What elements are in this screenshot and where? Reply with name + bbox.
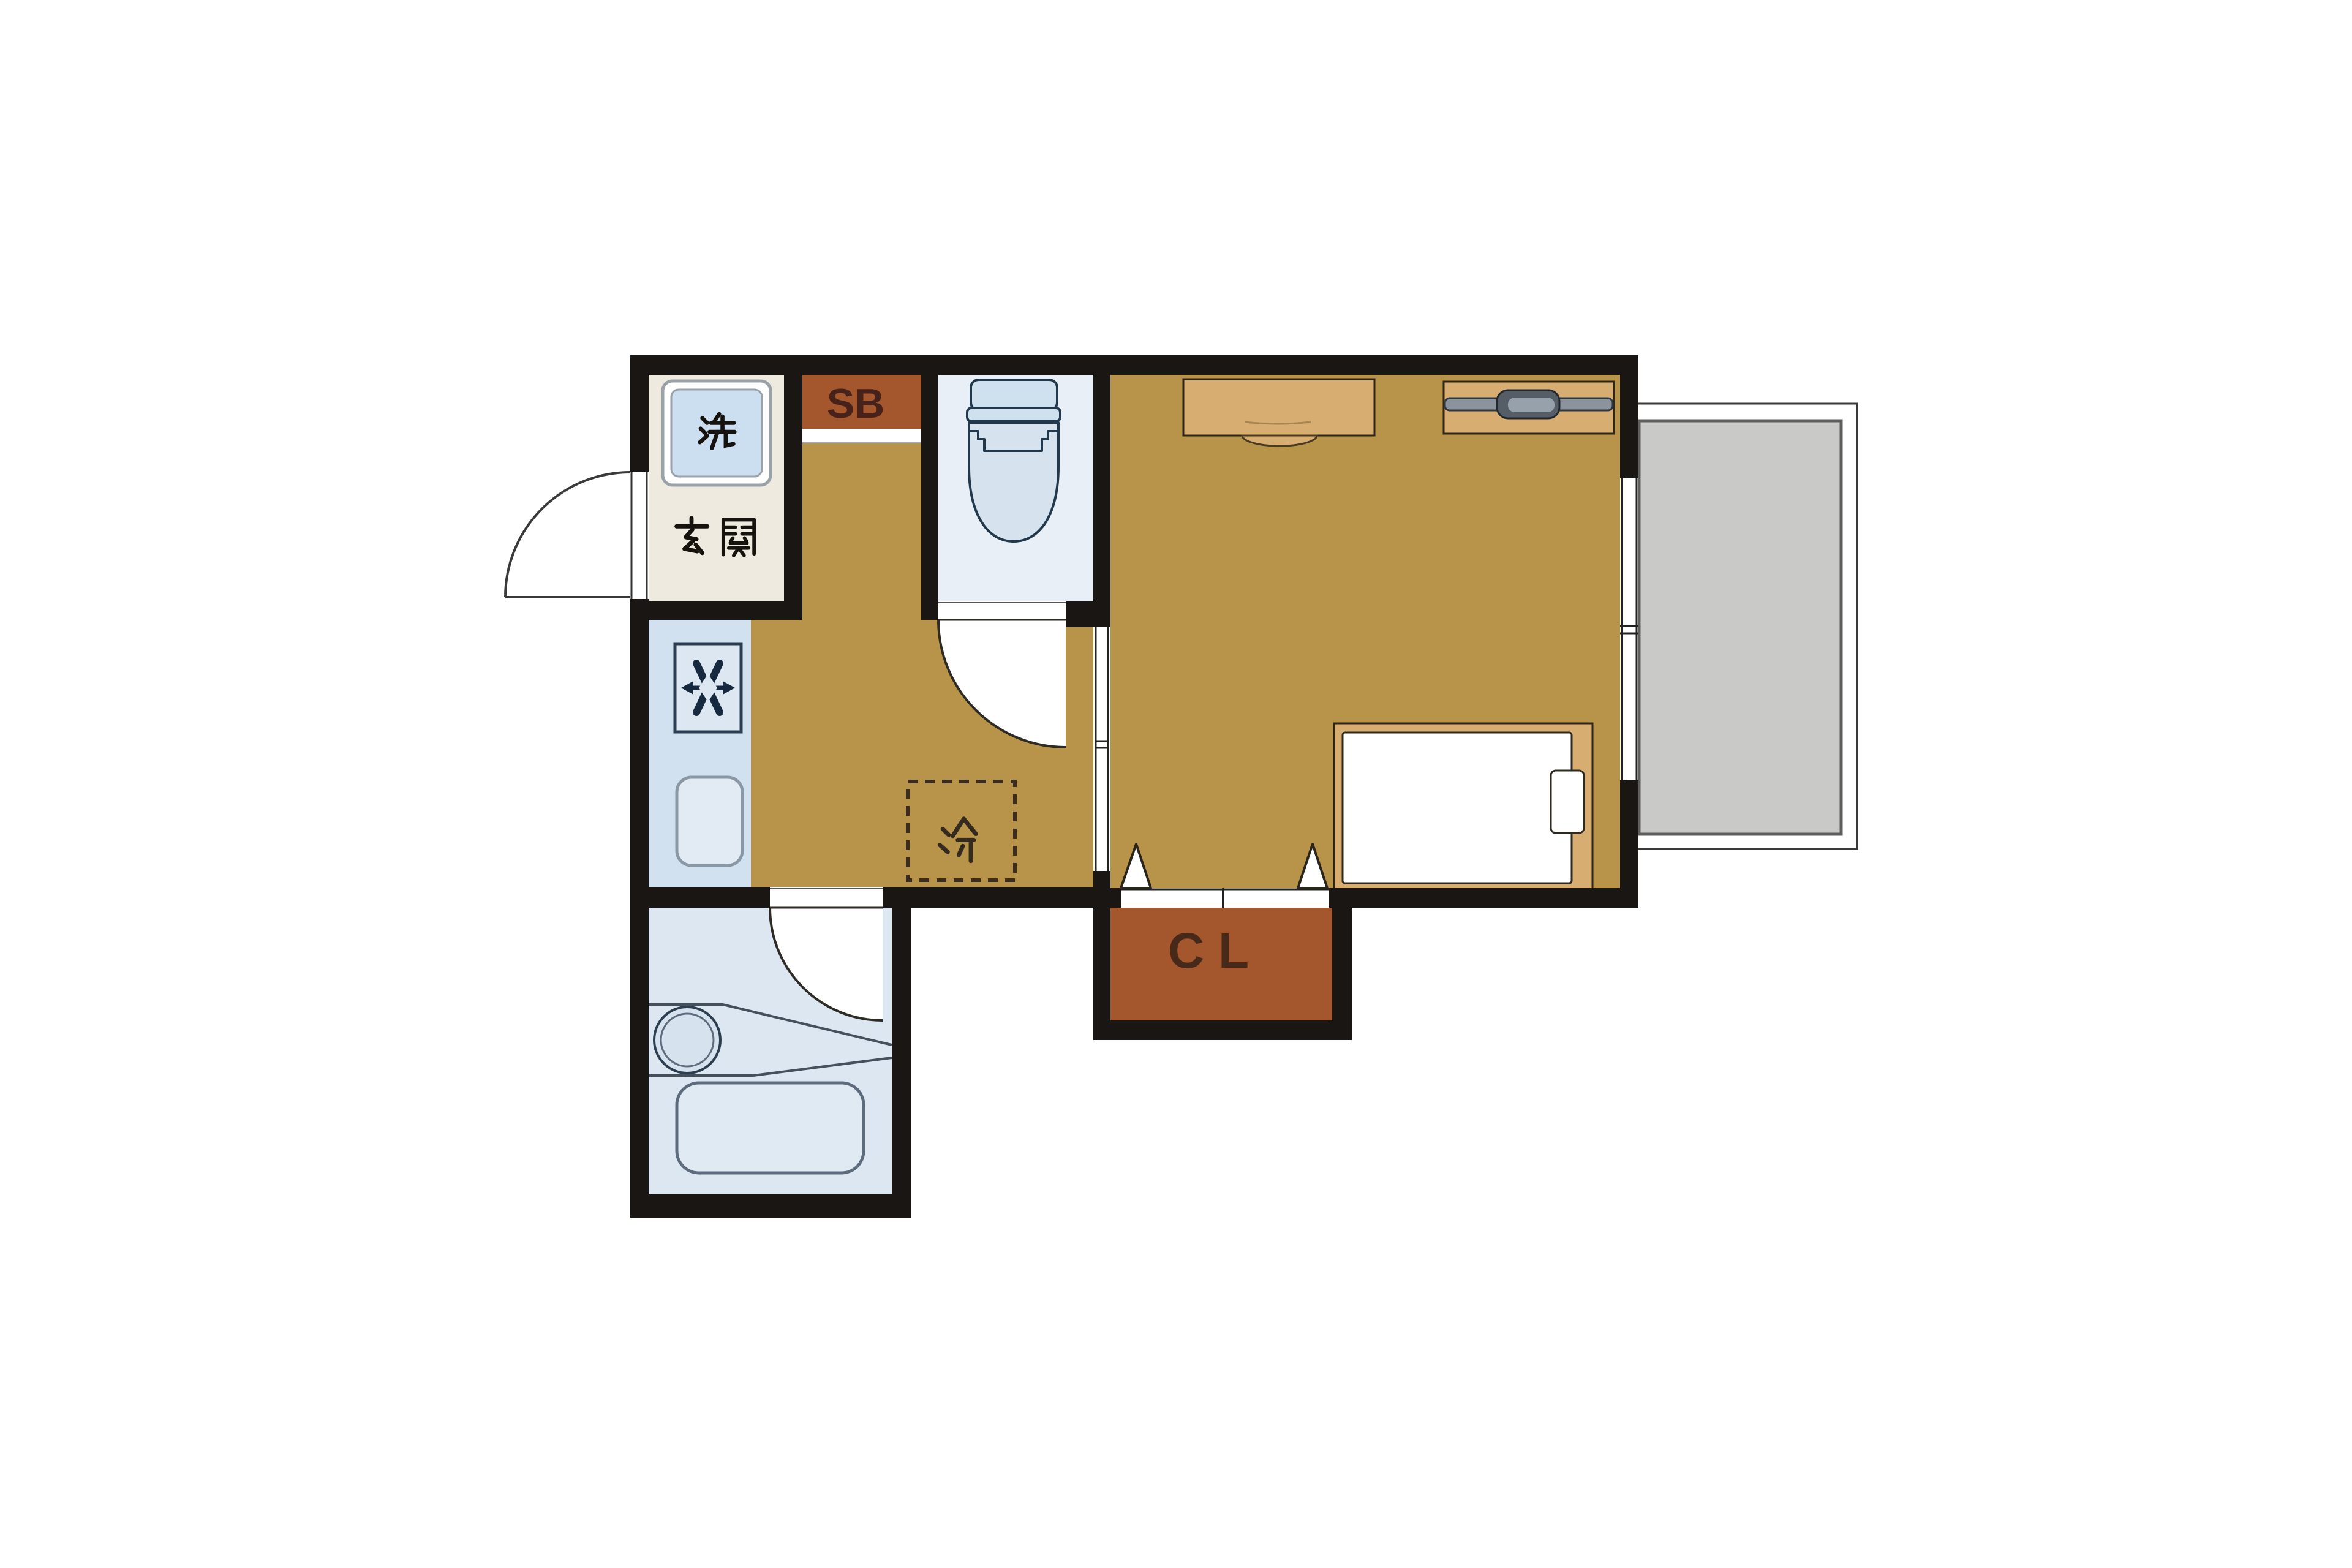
svg-text:C L: C L xyxy=(1168,923,1249,979)
svg-text:SB: SB xyxy=(827,380,884,427)
